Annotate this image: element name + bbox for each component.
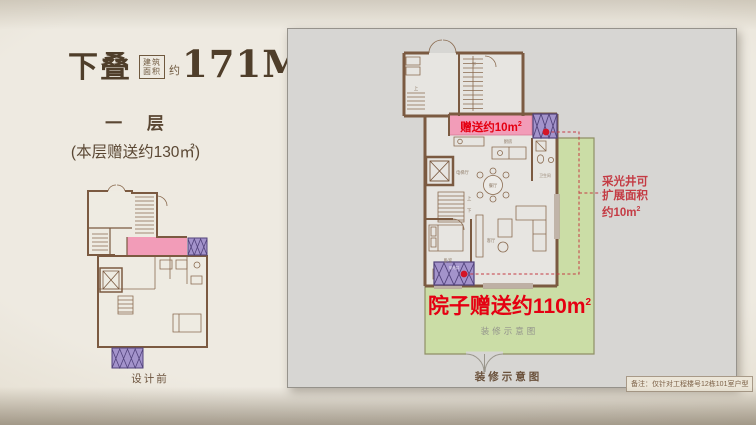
poster: 下叠 建筑 面积 约 171M 2 一 层 (本层赠送约130㎡)	[0, 0, 756, 425]
area-label-box: 建筑 面积	[139, 55, 165, 79]
label-stair-up: 上	[414, 85, 419, 91]
label-dining: 餐厅	[489, 182, 498, 189]
area-approx: 约	[169, 62, 180, 78]
label-bath: 卫生间	[539, 173, 551, 178]
thumb-gift-highlight	[127, 237, 187, 256]
before-plan-caption: 设计前	[90, 371, 210, 386]
area-value: 171M	[182, 42, 304, 86]
yard-gift-label: 院子赠送约110m2 装修示意图	[425, 290, 594, 337]
title-text: 下叠	[68, 42, 132, 86]
before-floorplan	[75, 184, 225, 374]
lightwell-box-bottom: 采光井	[434, 262, 474, 285]
plan-note: 备注：仅针对工程楼号12栋101室户型	[626, 376, 753, 392]
area-box-line2: 面积	[143, 67, 161, 76]
label-kitchen: 厨房	[504, 138, 513, 145]
label-living: 客厅	[487, 237, 496, 244]
gift-area-label: 赠送约10m2	[450, 116, 532, 134]
area-box-line1: 建筑	[143, 58, 161, 67]
label-bedroom: 卧室	[444, 257, 453, 264]
lightwell-annotation: 采光井可 扩展面积 约10m2	[602, 176, 648, 220]
floor-label: 一 层	[62, 109, 207, 134]
plan-title: 下叠 建筑 面积 约 171M 2	[68, 42, 315, 86]
lightwell-box-label: 采光井	[449, 265, 460, 270]
before-floorplan-svg	[75, 184, 225, 374]
label-midstair-up: 上	[467, 195, 472, 201]
label-elevator: 电梯厅	[456, 169, 470, 176]
plan-caption: 装修示意图	[436, 369, 581, 384]
floorplan-panel: 采光井 电梯厅 上 下 上 下 餐厅 厨房 卫生间 客厅 卧室	[287, 28, 737, 388]
bonus-area-label: (本层赠送约130㎡)	[48, 140, 223, 162]
yard-sublabel: 装修示意图	[425, 325, 594, 337]
